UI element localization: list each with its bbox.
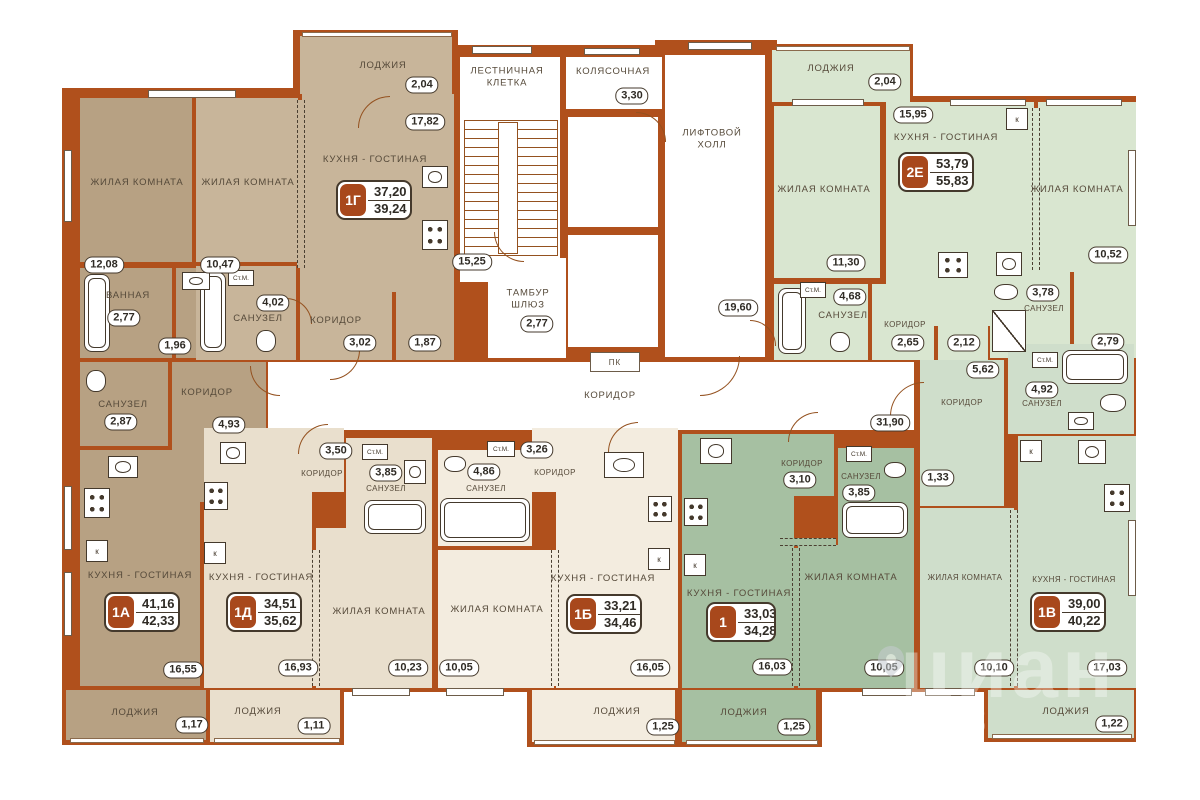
room-lift-shaft (568, 235, 658, 347)
room-label: КОЛЯСОЧНАЯ (576, 66, 650, 78)
area-badge: 4,93 (212, 417, 245, 434)
apartment-id: 1Б (570, 598, 596, 630)
area-badge: 10,52 (1088, 247, 1128, 264)
pk-niche: ПК (590, 352, 640, 372)
area-badge: 15,95 (893, 107, 933, 124)
area-badge: 2,79 (1091, 334, 1124, 351)
room-label: ЛОДЖИЯ (359, 60, 406, 72)
kitchen-unit-icon: к (1006, 108, 1028, 130)
apartment-areas: 33,21 34,46 (598, 596, 642, 632)
apartment-areas: 41,16 42,33 (136, 594, 180, 630)
area-badge: 2,77 (520, 316, 553, 333)
area-badge: 11,30 (827, 255, 866, 272)
room-label: ЖИЛАЯ КОМНАТА (332, 606, 425, 618)
toilet-icon (884, 462, 906, 478)
area-badge: 12,08 (84, 257, 124, 274)
room-label: КОРИДОР (301, 469, 343, 479)
area-badge: 3,10 (783, 472, 816, 489)
area-badge: 3,85 (842, 485, 875, 502)
window (1046, 99, 1122, 106)
loggia-glazing (302, 32, 452, 37)
room-label: КОРИДОР (941, 398, 983, 408)
toilet-icon (256, 330, 276, 352)
kitchen-unit-icon: к (1020, 440, 1042, 462)
room-label: ЖИЛАЯ КОМНАТА (90, 177, 183, 189)
area-badge: 16,03 (752, 659, 792, 676)
area-badge: 16,93 (278, 660, 318, 677)
sink-icon (700, 438, 732, 464)
sink-icon (220, 442, 246, 464)
area-badge: 2,12 (947, 335, 980, 352)
room-label: ЛИФТОВОЙ ХОЛЛ (672, 128, 752, 153)
room-label: ВАННАЯ (106, 290, 150, 302)
room-label: ЖИЛАЯ КОМНАТА (450, 604, 543, 616)
room-label: САНУЗЕЛ (98, 399, 148, 411)
area-badge: 4,92 (1025, 382, 1058, 399)
window (472, 46, 532, 54)
sliding-partition (780, 538, 836, 546)
area-badge: 4,68 (833, 289, 866, 306)
room-label: ЛЕСТНИЧНАЯ КЛЕТКА (457, 66, 557, 91)
apartment-id: 1А (108, 596, 134, 628)
area-badge: 1,17 (175, 717, 208, 734)
sliding-partition (551, 550, 559, 686)
apartment-areas: 34,51 35,62 (258, 594, 302, 630)
toilet-icon (994, 284, 1018, 300)
room-label: САНУЗЕЛ (1024, 304, 1064, 314)
loggia-glazing (686, 740, 818, 745)
room-label: КУХНЯ - ГОСТИНАЯ (209, 572, 313, 584)
area-badge: 1,96 (158, 338, 191, 355)
bathtub-icon (1062, 350, 1128, 384)
kitchen-unit-icon: к (684, 554, 706, 576)
room-label: САНУЗЕЛ (1022, 399, 1062, 409)
stove-icon (648, 496, 672, 522)
washer-icon: Ст.М. (487, 441, 515, 457)
window (792, 99, 864, 106)
room-label: КОРИДОР (181, 387, 233, 399)
apartment-badge-1g[interactable]: 1Г 37,20 39,24 (336, 180, 412, 220)
room-label: КОРИДОР (584, 390, 636, 402)
room-label: ЛОДЖИЯ (234, 706, 281, 718)
area-badge: 1,25 (777, 719, 810, 736)
apartment-badge-1d[interactable]: 1Д 34,51 35,62 (226, 592, 302, 632)
loggia-glazing (70, 738, 204, 743)
area-badge: 2,04 (868, 74, 901, 91)
window (64, 150, 72, 222)
loggia-glazing (534, 740, 675, 745)
window (1128, 150, 1136, 226)
bathtub-icon (84, 274, 110, 352)
room-label: КУХНЯ - ГОСТИНАЯ (687, 588, 791, 600)
room-label: КУХНЯ - ГОСТИНАЯ (88, 570, 192, 582)
area-badge: 3,26 (520, 442, 553, 459)
area-badge: 17,82 (405, 114, 445, 131)
area-badge: 3,30 (615, 88, 648, 105)
floor-plan: Ст.М. к Ст.М. к Ст.М. к Ст.М. к Ст.М. к … (0, 0, 1200, 800)
total-area: 39,24 (368, 201, 412, 217)
stove-icon (204, 482, 228, 510)
living-area: 33,03 (738, 606, 776, 623)
window (64, 486, 72, 550)
washer-icon: Ст.М. (362, 444, 388, 460)
room-label: ЖИЛАЯ КОМНАТА (928, 573, 1003, 583)
sink-icon (604, 452, 644, 478)
area-badge: 3,85 (369, 465, 402, 482)
window (446, 688, 504, 696)
area-badge: 10,05 (439, 660, 479, 677)
watermark-text: циан (900, 620, 1117, 717)
toilet-icon (86, 370, 106, 392)
bathtub-icon (842, 502, 908, 538)
watermark-digits: 13 (940, 700, 990, 743)
kitchen-unit-icon: к (648, 548, 670, 570)
window (584, 48, 640, 55)
area-badge: 1,22 (1095, 716, 1128, 733)
room-label: ЖИЛАЯ КОМНАТА (804, 572, 897, 584)
area-badge: 5,62 (966, 362, 999, 379)
apartment-id: 1 (710, 606, 736, 638)
room-label: КУХНЯ - ГОСТИНАЯ (551, 573, 655, 585)
sink-icon (1068, 412, 1094, 430)
sink-icon (996, 252, 1022, 276)
living-area: 41,16 (136, 596, 180, 613)
room-label: ЛОДЖИЯ (593, 706, 640, 718)
apartment-areas: 37,20 39,24 (368, 182, 412, 218)
apartment-badge-1b[interactable]: 1Б 33,21 34,46 (566, 594, 642, 634)
toilet-icon (444, 456, 466, 472)
room-label: КУХНЯ - ГОСТИНАЯ (894, 132, 998, 144)
area-badge: 2,65 (891, 335, 924, 352)
total-area: 35,62 (258, 613, 302, 629)
room-label: ЖИЛАЯ КОМНАТА (201, 177, 294, 189)
stove-icon (938, 252, 968, 278)
apartment-badge-1[interactable]: 1 33,03 34,28 (706, 602, 776, 642)
apartment-id: 1Д (230, 596, 256, 628)
area-badge: 2,77 (107, 310, 140, 327)
room-label: САНУЗЕЛ (841, 472, 881, 482)
living-area: 39,00 (1062, 596, 1106, 613)
window (950, 99, 1026, 106)
area-badge: 19,60 (718, 300, 758, 317)
room-label: КУХНЯ - ГОСТИНАЯ (323, 154, 427, 166)
sink-icon (182, 272, 210, 290)
sink-icon (422, 166, 448, 188)
total-area: 34,28 (738, 623, 776, 639)
shower-icon (992, 310, 1026, 352)
area-badge: 15,25 (452, 254, 492, 271)
loggia-glazing (214, 738, 340, 743)
apartment-areas: 53,79 55,83 (930, 154, 974, 190)
living-area: 34,51 (258, 596, 302, 613)
area-badge: 1,33 (921, 470, 954, 487)
stove-icon (422, 220, 448, 250)
area-badge: 1,25 (646, 719, 679, 736)
area-badge: 16,55 (163, 662, 203, 679)
area-badge: 3,50 (319, 443, 352, 460)
sink-icon (404, 460, 426, 484)
apartment-areas: 33,03 34,28 (738, 604, 776, 640)
loggia-glazing (776, 46, 910, 51)
room-label: ТАМБУР ШЛЮЗ (496, 288, 560, 313)
area-badge: 1,87 (408, 335, 441, 352)
room-label: КОРИДОР (781, 459, 823, 469)
room-kitchen-1a (80, 450, 200, 686)
bathtub-icon (440, 498, 530, 542)
toilet-icon (1100, 394, 1126, 412)
window (352, 688, 410, 696)
toilet-icon (830, 332, 850, 352)
area-badge: 3,78 (1026, 285, 1059, 302)
room-label: САНУЗЕЛ (366, 484, 406, 494)
area-badge: 10,47 (200, 257, 240, 274)
room-label: КУХНЯ - ГОСТИНАЯ (1032, 575, 1115, 585)
apartment-id: 2Е (902, 156, 928, 188)
sink-icon (1078, 440, 1106, 464)
total-area: 42,33 (136, 613, 180, 629)
sink-icon (108, 456, 138, 478)
total-area: 55,83 (930, 173, 974, 189)
area-badge: 10,23 (388, 660, 428, 677)
stove-icon (1104, 484, 1130, 512)
room-label: САНУЗЕЛ (466, 484, 506, 494)
kitchen-unit-icon: к (204, 542, 226, 564)
living-area: 33,21 (598, 598, 642, 615)
area-badge: 16,05 (630, 660, 670, 677)
room-label: ЖИЛАЯ КОМНАТА (777, 184, 870, 196)
window (64, 572, 72, 636)
washer-icon: Ст.М. (1032, 352, 1058, 368)
area-badge: 3,02 (343, 335, 376, 352)
apartment-badge-2e[interactable]: 2Е 53,79 55,83 (898, 152, 974, 192)
area-badge: 4,86 (467, 464, 500, 481)
room-label: ЖИЛАЯ КОМНАТА (1030, 184, 1123, 196)
apartment-id: 1Г (340, 184, 366, 216)
window (688, 42, 752, 50)
room-label: ЛОДЖИЯ (720, 707, 767, 719)
area-badge: 2,04 (405, 77, 438, 94)
room-stroller (566, 57, 662, 109)
window (1128, 520, 1136, 596)
loggia-glazing (992, 734, 1132, 739)
kitchen-unit-icon: к (86, 540, 108, 562)
room-label: ЛОДЖИЯ (807, 63, 854, 75)
bathtub-icon (364, 500, 426, 534)
room-label: КОРИДОР (884, 320, 926, 330)
area-badge: 4,02 (256, 295, 289, 312)
area-badge: 1,11 (298, 718, 331, 735)
room-label: САНУЗЕЛ (233, 313, 283, 325)
washer-icon: Ст.М. (846, 446, 872, 462)
sliding-partition (297, 100, 305, 268)
area-badge: 2,87 (104, 414, 137, 431)
living-area: 37,20 (368, 184, 412, 201)
total-area: 34,46 (598, 615, 642, 631)
room-label: КОРИДОР (534, 468, 576, 478)
sliding-partition (792, 548, 800, 686)
stove-icon (684, 498, 708, 526)
area-badge: 31,90 (870, 415, 910, 432)
living-area: 53,79 (930, 156, 974, 173)
stove-icon (84, 488, 110, 518)
room-label: САНУЗЕЛ (818, 310, 868, 322)
room-label: ЛОДЖИЯ (111, 707, 158, 719)
window (148, 90, 236, 98)
apartment-badge-1a[interactable]: 1А 41,16 42,33 (104, 592, 180, 632)
washer-icon: Ст.М. (800, 282, 826, 298)
room-label: КОРИДОР (310, 315, 362, 327)
